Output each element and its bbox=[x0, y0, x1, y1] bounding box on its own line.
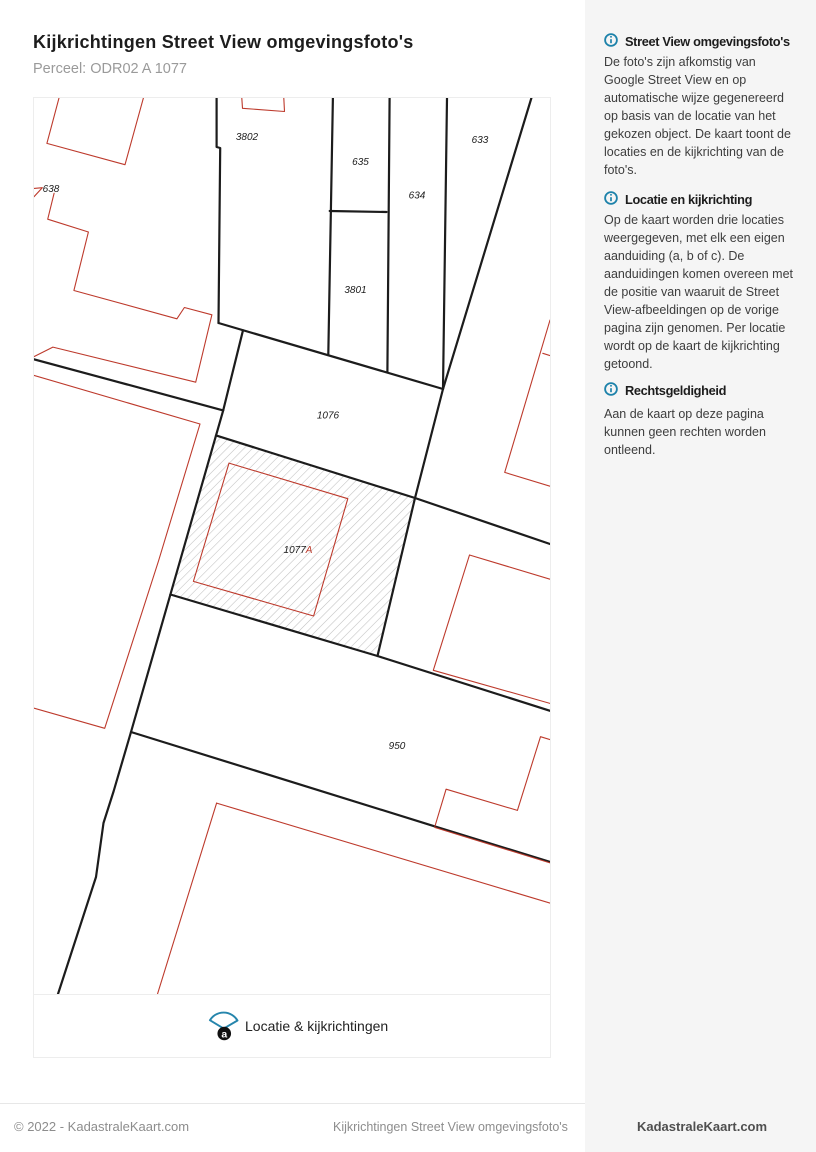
svg-text:950: 950 bbox=[389, 741, 406, 752]
svg-text:1076: 1076 bbox=[317, 411, 340, 422]
svg-text:3801: 3801 bbox=[344, 285, 366, 296]
svg-text:634: 634 bbox=[409, 191, 426, 202]
svg-text:3802: 3802 bbox=[236, 132, 259, 143]
svg-text:1077A: 1077A bbox=[284, 545, 313, 556]
svg-text:633: 633 bbox=[472, 135, 489, 146]
svg-text:635: 635 bbox=[352, 157, 369, 168]
svg-text:a: a bbox=[221, 1028, 227, 1040]
svg-text:638: 638 bbox=[43, 184, 60, 195]
